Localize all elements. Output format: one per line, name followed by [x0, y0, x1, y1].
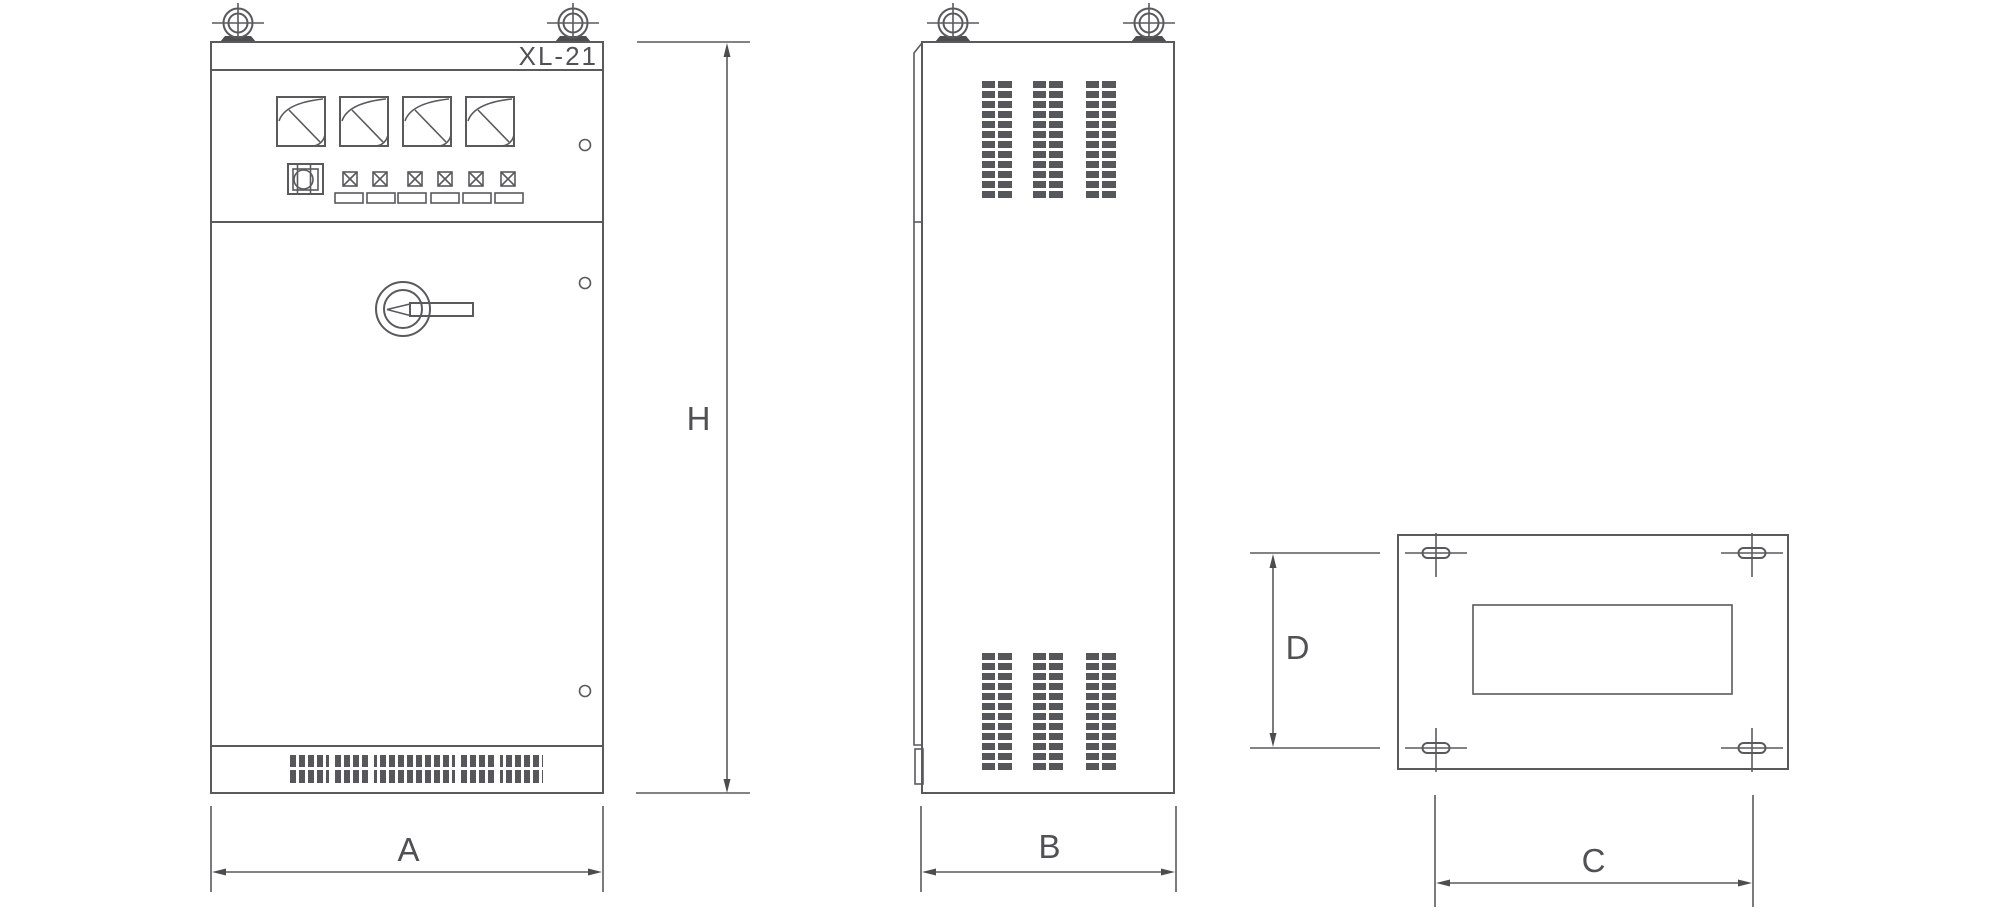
label-strip: [463, 193, 491, 203]
label-strip: [367, 193, 395, 203]
dim-label-depth: B: [1020, 830, 1080, 864]
door-handle-icon: [376, 282, 473, 336]
lifting-eye-icon: [927, 3, 979, 42]
vent-grille: [982, 653, 1012, 771]
indicator-light-icon: [408, 172, 422, 186]
lifting-eye-icon: [547, 3, 599, 42]
top-view: [1398, 533, 1788, 772]
model-label: XL-21: [438, 43, 598, 70]
analog-meter-icon: [277, 97, 325, 146]
label-strip: [398, 193, 426, 203]
analog-meter-icon: [466, 97, 514, 146]
dim-label-mount-width: C: [1564, 844, 1624, 878]
dim-label-mount-depth: D: [1268, 631, 1328, 665]
vent-grille: [1086, 81, 1116, 199]
analog-meter-icon: [403, 97, 451, 146]
label-strip: [431, 193, 459, 203]
door-knob-icon: [580, 278, 591, 289]
lifting-eye-icon: [212, 3, 264, 42]
dim-label-width: A: [379, 833, 439, 867]
door-knob-icon: [580, 686, 591, 697]
dim-label-height: H: [669, 402, 729, 436]
cabinet-outline: [211, 42, 603, 793]
indicator-light-icon: [373, 172, 387, 186]
indicator-light-row: [343, 172, 515, 186]
vent-grille: [1086, 653, 1116, 771]
vent-grille: [982, 81, 1012, 199]
indicator-light-icon: [343, 172, 357, 186]
rotary-switch-icon: [288, 164, 323, 194]
technical-drawing-canvas: XL-21 H A B C D: [0, 0, 2000, 920]
mounting-slot-icon: [1721, 533, 1783, 577]
label-strip-row: [335, 193, 523, 203]
indicator-light-icon: [438, 172, 452, 186]
lifting-eye-icon: [1123, 3, 1175, 42]
mounting-slot-icon: [1405, 533, 1467, 577]
analog-meter-icon: [340, 97, 388, 146]
indicator-light-icon: [501, 172, 515, 186]
base-plate-outline: [1398, 535, 1788, 769]
plinth-vent-grille: [290, 755, 543, 783]
door-edge-profile: [914, 43, 922, 745]
label-strip: [495, 193, 523, 203]
vent-grille: [1033, 653, 1063, 771]
vent-grille: [1033, 81, 1063, 199]
cable-entry-opening: [1473, 605, 1732, 694]
mounting-slot-icon: [1721, 728, 1783, 772]
mounting-slot-icon: [1405, 728, 1467, 772]
front-view: [211, 3, 603, 793]
label-strip: [335, 193, 363, 203]
meter-row: [277, 97, 514, 146]
indicator-light-icon: [469, 172, 483, 186]
door-knob-icon: [580, 140, 591, 151]
